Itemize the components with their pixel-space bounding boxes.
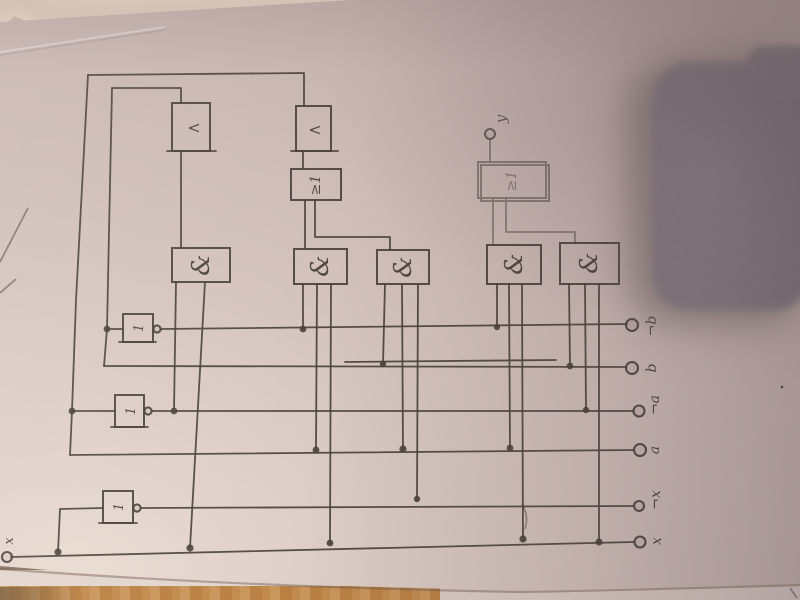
inverter-bubble	[144, 407, 151, 414]
ff-box-2: <	[291, 106, 338, 151]
svg-text:1: 1	[132, 324, 147, 332]
svg-text:1: 1	[124, 407, 139, 415]
ff-box-1: <	[167, 103, 216, 151]
terminal-label: ¬a	[647, 395, 663, 415]
junction-dots	[54, 324, 602, 556]
or-gate-1: ≥1	[291, 151, 390, 250]
and-gate-5: &	[560, 243, 619, 284]
not-gate-1: 1	[107, 314, 161, 342]
svg-text:1: 1	[112, 503, 127, 511]
and-gate-3: &	[377, 250, 429, 284]
terminal-label: a	[647, 446, 663, 454]
dark-object	[652, 62, 800, 310]
terminal-label: b	[644, 363, 660, 372]
and-gate-4: &	[487, 245, 541, 284]
or-gate-2: ≥1	[478, 140, 575, 245]
svg-text:&: &	[306, 255, 334, 276]
svg-text:&: &	[389, 256, 417, 277]
stray-pencil-lines-left-paper	[0, 208, 28, 293]
terminal-label: ¬b	[644, 316, 660, 337]
not-gate-2: 1	[72, 395, 152, 427]
output-y-terminal: y	[485, 114, 510, 139]
inverter-bubble	[133, 504, 140, 511]
and-gate-1: &	[172, 151, 230, 282]
terminal-label: x	[649, 537, 665, 545]
input-x-label: x	[2, 537, 17, 545]
photo-frame: < < ≥1 ≥1 y	[0, 0, 800, 600]
not-gate-3: 1	[58, 491, 141, 552]
inverter-bubble	[153, 325, 160, 332]
svg-text:&: &	[187, 254, 215, 275]
svg-text:≥1: ≥1	[504, 171, 520, 192]
clock-icon: <	[308, 120, 321, 139]
input-x-terminal: x	[2, 537, 17, 562]
output-y-label: y	[492, 114, 510, 124]
terminal-label: ¬x	[648, 490, 664, 510]
svg-text:&: &	[500, 253, 528, 274]
svg-text:&: &	[575, 252, 603, 273]
clock-icon: <	[187, 118, 200, 137]
svg-text:≥1: ≥1	[308, 175, 324, 196]
and-gate-2: &	[294, 249, 347, 284]
dark-object-tab	[746, 46, 800, 98]
output-terminals: ¬b b ¬a a ¬x x	[626, 316, 665, 548]
